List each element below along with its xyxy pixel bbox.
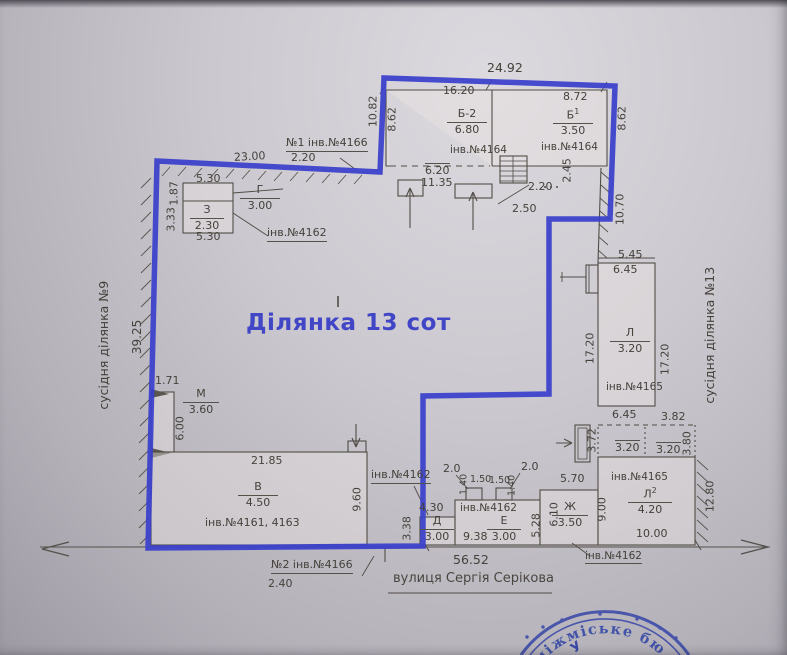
dim-b2-depth: 8.62 <box>387 99 400 139</box>
dim-right-upper: 10.70 <box>615 187 628 231</box>
dim-zh-width: 5.70 <box>560 473 585 486</box>
inventory-l: інв.№4165 <box>606 381 663 393</box>
inventory-zh: інв.№4162 <box>585 550 642 564</box>
building-v-height: 4.50 <box>238 496 278 510</box>
dim-d-width: 4.30 <box>419 502 444 515</box>
building-l-height: 3.20 <box>610 342 650 356</box>
inventory-b1: інв.№4164 <box>541 141 598 153</box>
building-e-letter: Е <box>487 515 521 530</box>
dim-l2-strip-w2: 3.82 <box>661 411 686 424</box>
dim-l2-depth: 9.00 <box>597 491 610 527</box>
building-e-label: Е 3.00 <box>487 515 521 543</box>
building-b1-sup: 1 <box>574 107 579 116</box>
dim-v-depth: 9.60 <box>352 481 365 517</box>
dim-top-total: 24.92 <box>487 61 523 75</box>
dim-z-width-bottom: 5.30 <box>196 231 221 244</box>
dim-notch-h-left: 1.40 <box>460 469 471 499</box>
building-v-letter: В <box>238 481 278 496</box>
dim-notch-w-left: 1.50 <box>470 475 491 486</box>
dim-left-length: 39.25 <box>131 315 145 359</box>
gate-1-width: 2.20 <box>291 152 316 165</box>
building-g-height: 3.00 <box>240 199 280 213</box>
building-b2-letter: Б-2 <box>447 108 487 123</box>
dim-notch-h-right: 1.40 <box>508 470 519 500</box>
building-m-height: 3.60 <box>183 403 219 417</box>
building-g-letter: Г <box>240 184 280 199</box>
plot-area-title: Ділянка 13 сот <box>246 310 451 336</box>
building-b1-label: Б1 3.50 <box>553 107 593 138</box>
gate-2-width: 2.40 <box>268 578 293 591</box>
dim-l2-strip-v1: 3.20 <box>615 440 640 455</box>
building-b1-letter-wrap: Б1 <box>553 107 593 124</box>
dim-m-offset: 1.71 <box>155 375 180 388</box>
building-e-height: 3.00 <box>487 530 521 544</box>
dim-l2-strip-h2: 3.80 <box>682 425 695 461</box>
dim-stair-1: 2.20 <box>528 181 553 194</box>
dim-l-width: 6.45 <box>613 264 638 277</box>
inventory-l2: інв.№4165 <box>611 471 668 483</box>
building-l2-sup: 2 <box>652 486 657 495</box>
building-b2-height: 6.80 <box>447 123 487 137</box>
building-l2-height: 4.20 <box>628 503 672 517</box>
inventory-b2: інв.№4164 <box>450 144 507 156</box>
dim-d-depth: 3.38 <box>402 510 415 546</box>
gate-1-label: №1 інв.№4166 <box>286 137 368 152</box>
neighbor-right-label: сусідня ділянка №13 <box>703 260 717 410</box>
dim-z-width-top: 5.30 <box>196 173 221 186</box>
building-d-height: 3.00 <box>420 530 454 544</box>
building-l-letter: Л <box>610 327 650 342</box>
building-m-label: М 3.60 <box>183 388 219 416</box>
dim-street-frontage: 56.52 <box>453 553 489 567</box>
neighbor-left-label: сусідня ділянка №9 <box>97 270 111 420</box>
dim-m-depth: 6.00 <box>175 410 188 446</box>
dim-l2-width: 10.00 <box>636 528 668 541</box>
inventory-v: інв.№4161, 4163 <box>205 517 300 530</box>
building-d-label: Д 3.00 <box>420 515 454 543</box>
dim-z-depth: 3.33 <box>166 201 179 237</box>
cadastral-plan-scan: міжміське бю 24.92 16.20 8.72 10.82 8.62… <box>0 0 787 655</box>
building-v-label: В 4.50 <box>238 481 278 509</box>
building-z-label: З 2.30 <box>190 204 224 232</box>
dim-l-depth-left: 17.20 <box>585 326 598 370</box>
dim-l-depth-right: 17.20 <box>660 337 673 381</box>
street-name: вулиця Сергія Серікова <box>393 572 554 587</box>
dim-stair-2: 2.45 <box>562 152 575 188</box>
building-zh-label: Ж 3.50 <box>552 501 588 529</box>
dim-l2-strip-h1: 3.72 <box>587 422 600 458</box>
building-l2-label: Л2 4.20 <box>628 486 672 517</box>
dim-outside-left: 10.82 <box>368 89 381 133</box>
building-l2-letter-wrap: Л2 <box>628 486 672 503</box>
dim-porch-2: 11.35 <box>421 177 453 190</box>
round-stamp: міжміське бю <box>521 612 689 655</box>
building-l-label: Л 3.20 <box>610 327 650 355</box>
dim-notch-gap-right: 2.0 <box>521 461 539 474</box>
dim-right-lower: 12.80 <box>705 474 718 518</box>
dim-b1-depth: 8.62 <box>617 98 630 138</box>
dim-top-left-edge: 23.00 <box>234 150 266 164</box>
building-b2-label: Б-2 6.80 <box>447 108 487 136</box>
building-z-letter: З <box>190 204 224 219</box>
inventory-d-leader: інв.№4162 <box>371 469 431 484</box>
building-l2-letter: Л <box>643 488 651 501</box>
building-zh-letter: Ж <box>552 501 588 516</box>
dim-v-width: 21.85 <box>251 455 283 468</box>
dim-e-depth: 5.28 <box>531 507 544 543</box>
dim-l-top: 5.45 <box>618 249 643 262</box>
dim-e-width: 9.38 <box>463 531 488 544</box>
inventory-z: інв.№4162 <box>267 227 327 242</box>
building-zh-height: 3.50 <box>552 516 588 530</box>
dim-b2-width: 16.20 <box>443 85 475 98</box>
building-d-letter: Д <box>420 515 454 530</box>
dim-b1-width: 8.72 <box>563 91 588 104</box>
building-b1-height: 3.50 <box>553 124 593 138</box>
building-g-label: Г 3.00 <box>240 184 280 212</box>
dim-l2-strip-w1: 6.45 <box>612 409 637 422</box>
building-m-letter: М <box>183 388 219 403</box>
gate-2-label: №2 інв.№4166 <box>271 559 353 574</box>
dim-l2-strip-v2: 3.20 <box>656 442 681 457</box>
inventory-e: інв.№4162 <box>460 502 517 514</box>
dim-stair-3: 2.50 <box>512 203 537 216</box>
